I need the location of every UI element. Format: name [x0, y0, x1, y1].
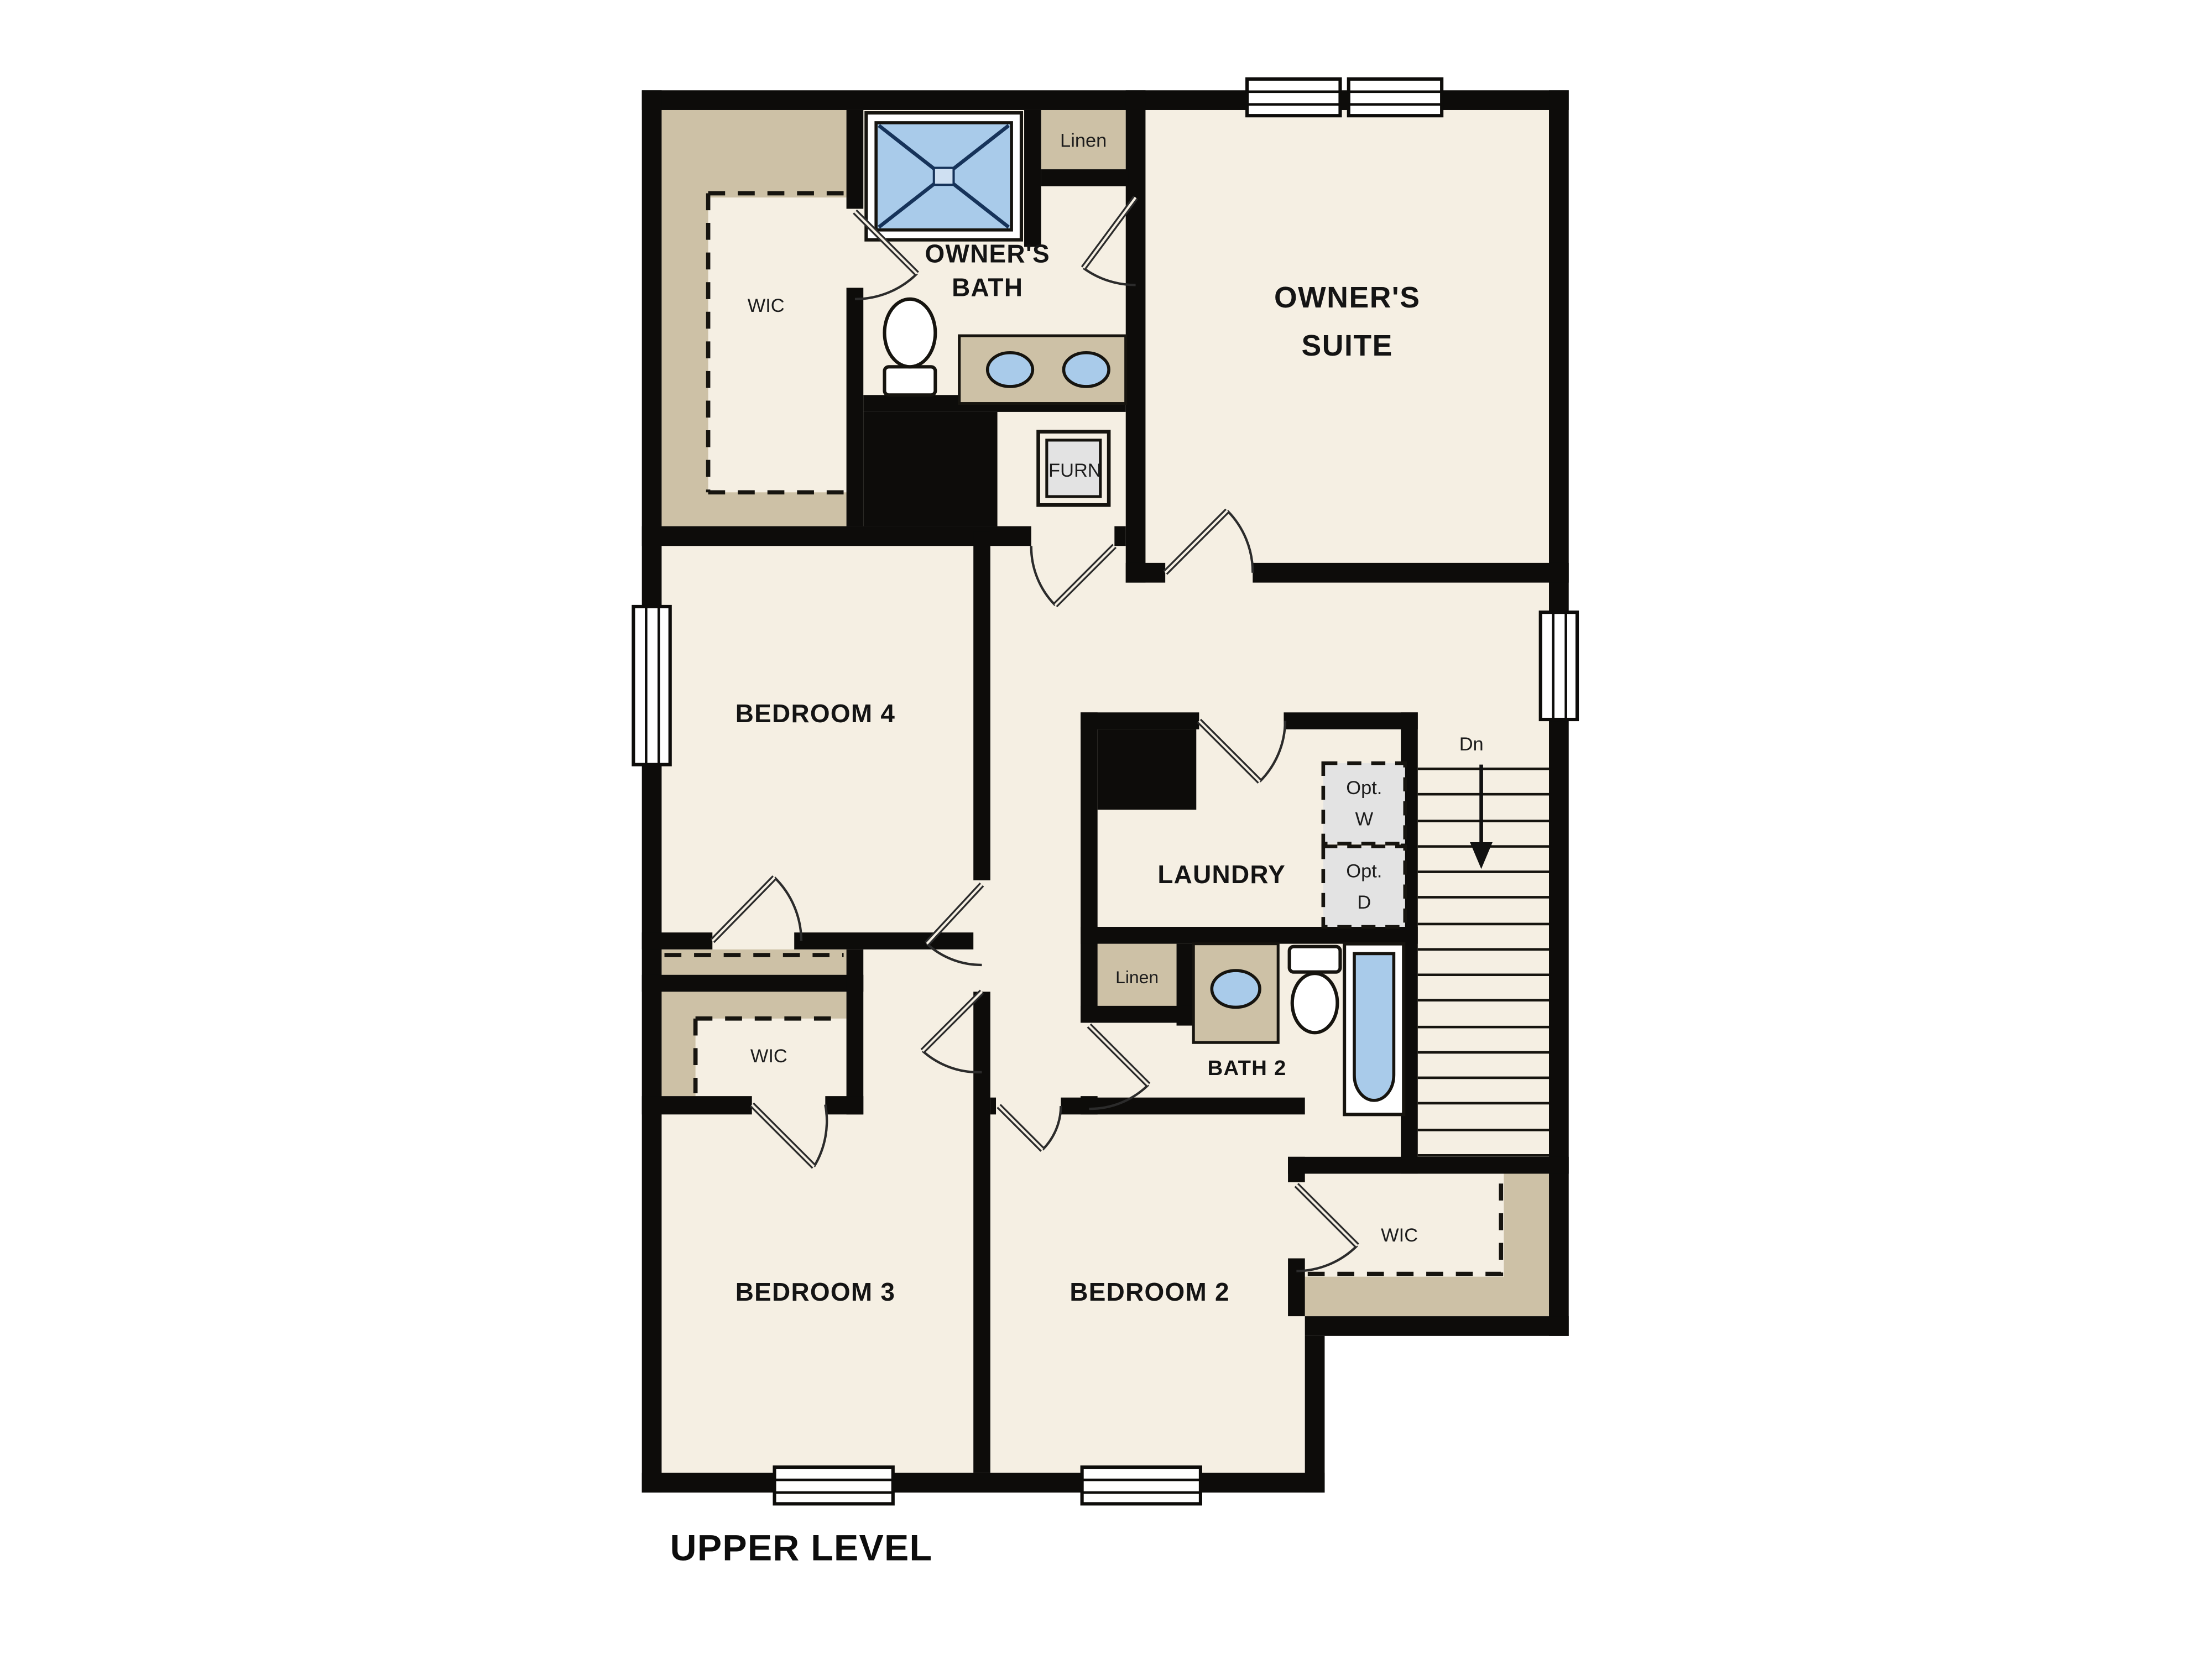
toilet2-tank — [1290, 947, 1340, 972]
wall-stairs-bottom — [1288, 1157, 1569, 1174]
bedroom2-wic-label: WIC — [1381, 1225, 1418, 1246]
floor-plan-page: Dn FURN Opt. — [0, 0, 2212, 1659]
wall-hall-left-upper — [973, 532, 990, 880]
bedroom3-wic-left-shelf — [661, 992, 695, 1096]
wall-exterior-bottom — [642, 1473, 1325, 1493]
owners-wic-left-shelf — [661, 110, 708, 526]
wall-bath2-bottom-b — [1061, 1098, 1305, 1115]
opt-washer-line1: Opt. — [1346, 778, 1382, 799]
optional-dryer: Opt. D — [1323, 847, 1405, 927]
bedroom4-label: BEDROOM 4 — [735, 699, 896, 728]
wall-bedroom2-right — [1305, 1336, 1325, 1493]
window-bedroom3-bottom — [775, 1467, 893, 1504]
bedroom2-label: BEDROOM 2 — [1070, 1277, 1230, 1306]
wall-suite-bottom-a — [1126, 563, 1165, 583]
plan-title: UPPER LEVEL — [670, 1527, 933, 1568]
owners-bath-label-line1: OWNER'S — [925, 239, 1050, 268]
wall-linen-bath2-bottom — [1081, 1006, 1193, 1023]
opt-dryer-line2: D — [1357, 892, 1371, 913]
furnace-unit: FURN — [1039, 432, 1109, 505]
wall-laundry-top-b — [1284, 712, 1417, 729]
window-suite-top-2 — [1349, 79, 1442, 116]
wall-exterior-step — [1305, 1316, 1569, 1336]
wall-laundry-chase — [1098, 729, 1197, 810]
owners-suite-label-line2: SUITE — [1302, 330, 1393, 362]
bath2-label: BATH 2 — [1208, 1056, 1287, 1080]
wall-exterior-left — [642, 90, 662, 1493]
toilet1-bowl — [884, 299, 935, 367]
shower-drain — [934, 168, 954, 185]
window-hall-right — [1541, 612, 1577, 719]
owners-bath-toilet — [884, 299, 935, 395]
wall-laundry-bottom — [1081, 927, 1418, 944]
window-bedroom4-left — [633, 607, 670, 765]
wall-furn-bottom-stub — [1114, 526, 1125, 546]
wall-bedroom3-wic-bottom-b — [825, 1096, 863, 1114]
bedroom3-label: BEDROOM 3 — [735, 1277, 896, 1306]
optional-washer: Opt. W — [1323, 763, 1405, 843]
bath2-tub — [1344, 944, 1404, 1115]
vanity2-sink — [1212, 971, 1260, 1007]
bedroom3-wic-label: WIC — [750, 1046, 787, 1067]
vanity1-sink-left — [988, 353, 1033, 387]
bath2-toilet — [1290, 947, 1340, 1033]
wall-bedroom3-wic-right — [847, 950, 864, 1114]
opt-dryer-box — [1323, 847, 1405, 927]
wall-laundry-left-a — [1081, 712, 1098, 1022]
wall-bedroom3-wic-bottom-a — [642, 1096, 752, 1114]
opt-washer-line2: W — [1355, 808, 1374, 830]
wall-laundry-top-a — [1081, 712, 1199, 729]
toilet2-bowl — [1292, 973, 1338, 1032]
wall-band-under-wic — [642, 526, 1031, 546]
wall-suite-left — [1126, 90, 1146, 582]
wall-closet-strip-bottom — [642, 975, 864, 992]
wall-linen-upper-bottom — [1041, 169, 1129, 186]
wall-bath2-bottom-a — [990, 1098, 996, 1115]
stairs-down-label: Dn — [1459, 734, 1484, 755]
bedroom2-wic-right-shelf — [1504, 1173, 1549, 1316]
wall-suite-bottom-b — [1253, 563, 1568, 583]
wall-bedroom2-wic-left-a — [1288, 1157, 1305, 1182]
wall-bedroom4-bottom-b — [794, 932, 973, 950]
laundry-label: LAUNDRY — [1157, 860, 1286, 889]
tub-basin — [1354, 953, 1394, 1100]
owners-bath-label-line2: BATH — [952, 273, 1023, 302]
wall-owners-wic-right-a — [847, 110, 864, 209]
window-suite-top-1 — [1247, 79, 1340, 116]
window-bedroom2-bottom — [1082, 1467, 1201, 1504]
furnace-label: FURN — [1048, 460, 1102, 481]
opt-washer-box — [1323, 763, 1405, 843]
owners-wic-bottom-shelf — [661, 492, 846, 526]
wall-bedroom4-bottom-a — [642, 932, 713, 950]
toilet1-tank — [884, 367, 935, 395]
owners-suite-label-line1: OWNER'S — [1274, 281, 1420, 314]
wall-bedroom2-wic-left-b — [1288, 1259, 1305, 1317]
opt-dryer-line1: Opt. — [1346, 861, 1382, 882]
owners-bath-vanity — [959, 336, 1126, 403]
vanity1-sink-right — [1063, 353, 1109, 387]
shower — [866, 113, 1021, 240]
linen-upper-label: Linen — [1060, 130, 1107, 151]
owners-wic-label: WIC — [748, 295, 785, 316]
floor-plan-canvas: Dn FURN Opt. — [0, 0, 2212, 1659]
wall-owners-wic-right-b — [847, 288, 864, 526]
wall-chase — [863, 412, 997, 526]
wall-hall-left-lower — [973, 992, 990, 1473]
linen-bath2-label: Linen — [1115, 967, 1159, 987]
bath2-vanity — [1193, 944, 1278, 1043]
wall-shower-right-stub — [1024, 110, 1041, 247]
